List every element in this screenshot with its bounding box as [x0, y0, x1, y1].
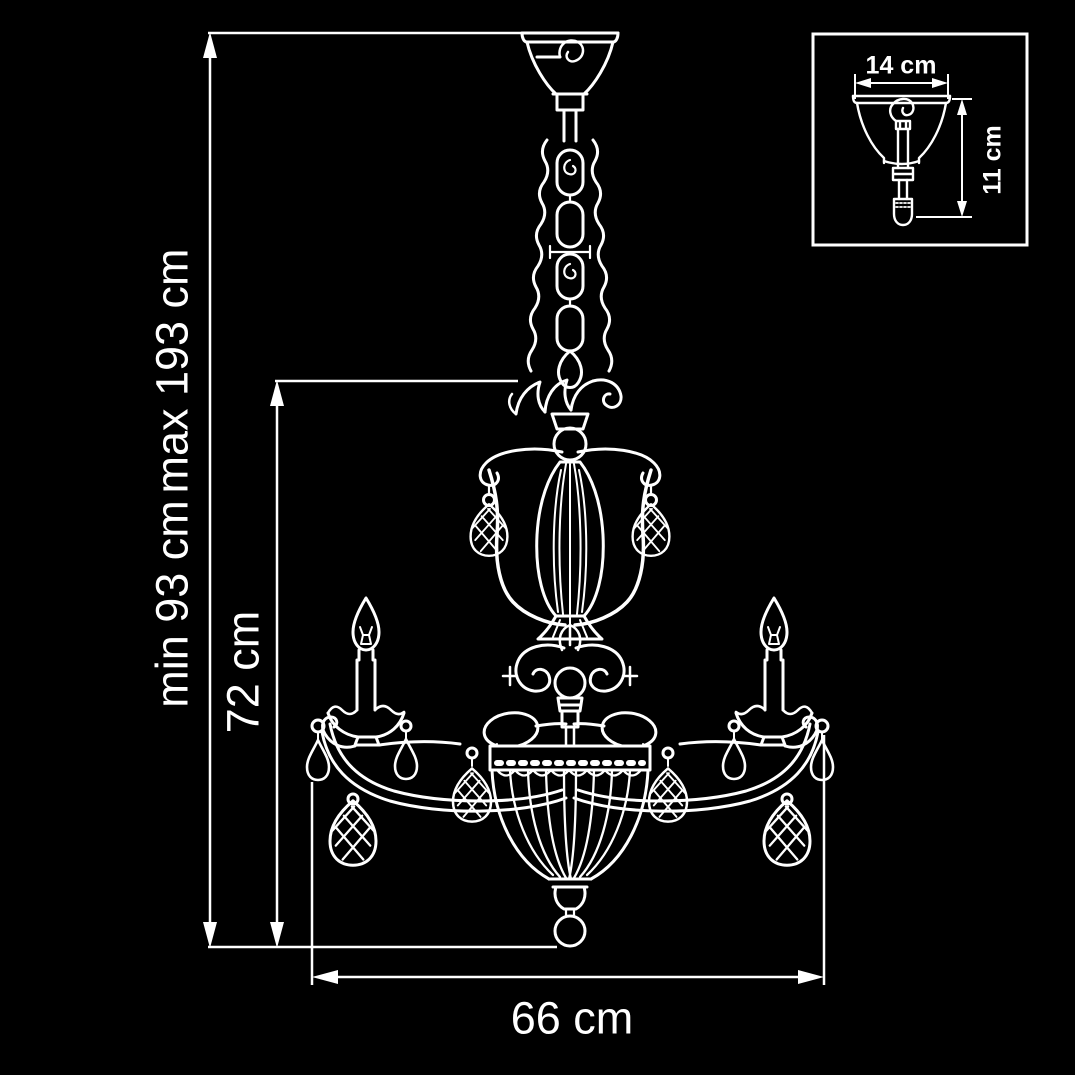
dim-label-width: 66 cm [511, 996, 634, 1041]
dim-label-canopy-width: 14 cm [866, 54, 937, 79]
arrow-left-icon [312, 970, 338, 984]
basket-bowl [490, 746, 650, 946]
ceiling-canopy [522, 33, 618, 141]
arrow-up-icon [203, 32, 217, 58]
dim-label-min-height: min 93 cm [150, 500, 195, 708]
arrow-down-icon [203, 922, 217, 948]
hook-icon [559, 40, 583, 61]
dim-label-canopy-height: 11 cm [981, 125, 1006, 195]
arrow-up-icon [270, 380, 284, 406]
canopy-detail-drawing [853, 96, 950, 225]
ball-connector [554, 428, 586, 460]
left-arm-assembly [307, 449, 566, 865]
arrow-down-icon [957, 201, 967, 217]
leaf-crown [509, 380, 621, 429]
vase-stem [537, 462, 604, 639]
dim-label-body-height: 72 cm [221, 611, 266, 734]
scroll-ornament [503, 625, 637, 746]
arrow-up-icon [957, 99, 967, 115]
arrow-right-icon [932, 78, 948, 88]
dimension-lines [208, 33, 824, 985]
chandelier-drawing [307, 33, 833, 946]
diagram-canvas: max 193 cm min 93 cm 72 cm 66 cm 14 cm 1… [0, 0, 1075, 1075]
right-arm-assembly [574, 449, 833, 865]
arrow-right-icon [798, 970, 824, 984]
finial-ball [555, 916, 585, 946]
chain [528, 140, 612, 388]
arrow-down-icon [270, 922, 284, 948]
arrow-left-icon [855, 78, 871, 88]
dim-label-max-height: max 193 cm [150, 248, 195, 493]
